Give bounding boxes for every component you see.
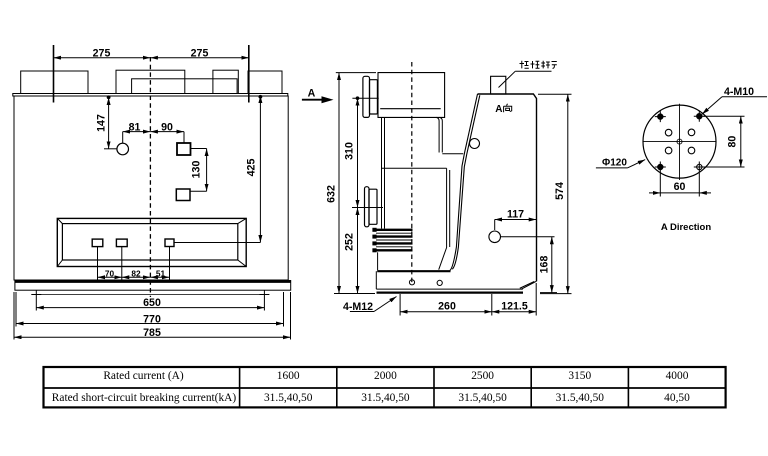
svg-text:81: 81 bbox=[129, 121, 141, 133]
svg-text:31.5,40,50: 31.5,40,50 bbox=[264, 392, 313, 404]
svg-text:A Direction: A Direction bbox=[661, 222, 712, 233]
svg-text:A: A bbox=[495, 104, 502, 115]
svg-text:Rated current (A): Rated current (A) bbox=[103, 370, 184, 382]
svg-text:40,50: 40,50 bbox=[664, 392, 690, 404]
svg-text:31.5,40,50: 31.5,40,50 bbox=[556, 392, 605, 404]
svg-text:275: 275 bbox=[191, 47, 209, 59]
svg-text:2500: 2500 bbox=[471, 370, 494, 382]
svg-text:121.5: 121.5 bbox=[501, 301, 528, 313]
svg-text:51: 51 bbox=[156, 268, 166, 278]
svg-text:60: 60 bbox=[674, 181, 686, 193]
svg-text:168: 168 bbox=[539, 256, 551, 274]
svg-text:3150: 3150 bbox=[568, 370, 591, 382]
svg-text:770: 770 bbox=[143, 313, 161, 325]
svg-text:632: 632 bbox=[326, 185, 338, 203]
svg-text:82: 82 bbox=[131, 268, 141, 278]
svg-text:2000: 2000 bbox=[374, 370, 397, 382]
svg-text:90: 90 bbox=[161, 121, 173, 133]
svg-text:31.5,40,50: 31.5,40,50 bbox=[458, 392, 507, 404]
svg-text:Φ120: Φ120 bbox=[602, 157, 627, 168]
svg-text:147: 147 bbox=[96, 114, 108, 132]
svg-text:275: 275 bbox=[93, 47, 111, 59]
svg-text:4-M10: 4-M10 bbox=[724, 86, 754, 98]
svg-text:260: 260 bbox=[438, 301, 456, 313]
svg-text:425: 425 bbox=[246, 159, 258, 177]
svg-text:Rated short-circuit breaking c: Rated short-circuit breaking current(kA) bbox=[52, 392, 237, 404]
svg-text:1600: 1600 bbox=[277, 370, 300, 382]
svg-text:A: A bbox=[308, 88, 316, 100]
svg-text:650: 650 bbox=[143, 297, 161, 309]
svg-text:117: 117 bbox=[507, 208, 524, 220]
svg-text:70: 70 bbox=[105, 268, 115, 278]
svg-text:785: 785 bbox=[143, 327, 161, 339]
svg-text:4000: 4000 bbox=[666, 370, 689, 382]
svg-text:310: 310 bbox=[344, 142, 356, 160]
svg-text:80: 80 bbox=[727, 136, 739, 148]
svg-text:252: 252 bbox=[344, 233, 356, 251]
svg-text:574: 574 bbox=[554, 182, 566, 200]
svg-text:31.5,40,50: 31.5,40,50 bbox=[361, 392, 410, 404]
svg-text:130: 130 bbox=[191, 161, 203, 179]
